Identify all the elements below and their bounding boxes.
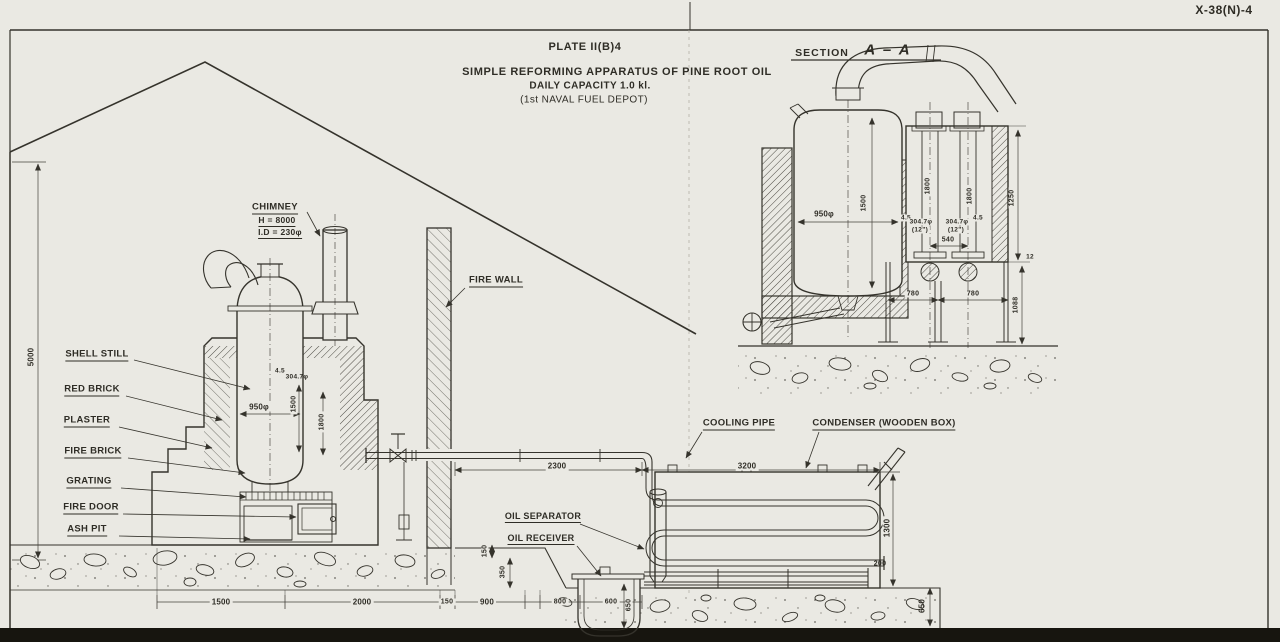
dim-recv-low: 350 — [500, 564, 507, 581]
dim-base-d: 900 — [478, 598, 496, 607]
dim-wall-height: 5000 — [27, 348, 36, 367]
drawing-depot: (1st NAVAL FUEL DEPOT) — [520, 95, 648, 106]
dim-base-e: 800 — [552, 599, 569, 606]
dim-base-a: 1500 — [210, 598, 233, 607]
sheet-ref: X-38(N)-4 — [1195, 3, 1252, 17]
sec-dim-inch-b: (12") — [946, 227, 966, 234]
dim-pit-depth: 650 — [918, 599, 927, 613]
sec-dim-inch-a: (12") — [910, 227, 930, 234]
grating-label: GRATING — [66, 476, 111, 489]
sec-dim-tube-a: 1800 — [925, 176, 932, 197]
chimney-id-label: I.D = 230φ — [258, 227, 302, 239]
dim-cond-height: 1300 — [883, 517, 892, 540]
plaster-label: PLASTER — [64, 415, 110, 428]
dim-recv-up: 150 — [482, 543, 489, 560]
fire-wall — [427, 228, 451, 585]
condenser-label: CONDENSER (WOODEN BOX) — [812, 418, 955, 431]
dim-base-c: 150 — [439, 599, 456, 606]
ash-pit-label: ASH PIT — [67, 524, 107, 537]
dim-recv-height: 650 — [626, 597, 633, 614]
sec-dim-dia-b: 304.7φ — [944, 219, 971, 226]
section-view — [738, 45, 1058, 394]
drawing-sheet: X-38(N)-4 PLATE II(B)4 SIMPLE REFORMING … — [0, 0, 1280, 642]
dim-base-f: 600 — [603, 599, 620, 606]
section-duct — [836, 45, 1016, 112]
drawing-title: SIMPLE REFORMING APPARATUS OF PINE ROOT … — [462, 66, 772, 78]
dim-still-h: 1500 — [291, 394, 298, 415]
dim-pipe-dia: 304.7φ — [286, 374, 309, 381]
section-heading: SECTION — [795, 47, 849, 59]
section-foundation — [738, 350, 1058, 394]
section-letters: A – A — [864, 42, 911, 59]
sec-dim-span-b: 780 — [965, 291, 982, 298]
cooling-pipe-label: COOLING PIPE — [703, 418, 775, 431]
dim-still-dia: 950φ — [247, 403, 271, 412]
sec-dim-pitch: 540 — [940, 237, 957, 244]
chimney-label: CHIMNEY — [252, 202, 298, 215]
dim-cond-len: 3200 — [736, 462, 759, 471]
dim-pipe-thk: 4.5 — [275, 368, 285, 375]
chimney-height-label: H = 8000 — [258, 215, 295, 227]
sec-dim-tube-b: 1800 — [967, 186, 974, 207]
oil-receiver-label: OIL RECEIVER — [508, 533, 575, 545]
sec-dim-box-h: 1250 — [1009, 188, 1016, 209]
sec-dim-thk-b: 4.5 — [971, 215, 985, 222]
dim-base-b: 2000 — [351, 598, 374, 607]
sec-dim-still-dia: 950φ — [812, 210, 836, 219]
sec-dim-span-a: 780 — [905, 291, 922, 298]
cooling-pipe — [366, 434, 652, 540]
foundation-left — [10, 548, 455, 590]
condenser-box — [646, 448, 905, 588]
sec-dim-dia-a: 304.7φ — [908, 219, 935, 226]
dim-pipe-run: 2300 — [546, 462, 569, 471]
dim-flue-depth: 1800 — [319, 412, 326, 433]
fire-wall-label: FIRE WALL — [469, 275, 523, 288]
plate-number: PLATE II(B)4 — [549, 41, 622, 53]
sec-dim-still-h: 1500 — [861, 193, 868, 214]
sec-dim-plate-thk: 12 — [1026, 254, 1034, 261]
red-brick-label: RED BRICK — [64, 384, 119, 397]
shell-still-label: SHELL STILL — [65, 349, 128, 362]
fire-door-label: FIRE DOOR — [63, 502, 118, 515]
dim-outlet: 200 — [874, 561, 887, 568]
drawing-capacity: DAILY CAPACITY 1.0 kl. — [529, 81, 650, 92]
fire-brick-label: FIRE BRICK — [64, 446, 121, 459]
oil-separator-label: OIL SEPARATOR — [505, 511, 581, 523]
sec-dim-foundation: 1088 — [1013, 295, 1020, 316]
